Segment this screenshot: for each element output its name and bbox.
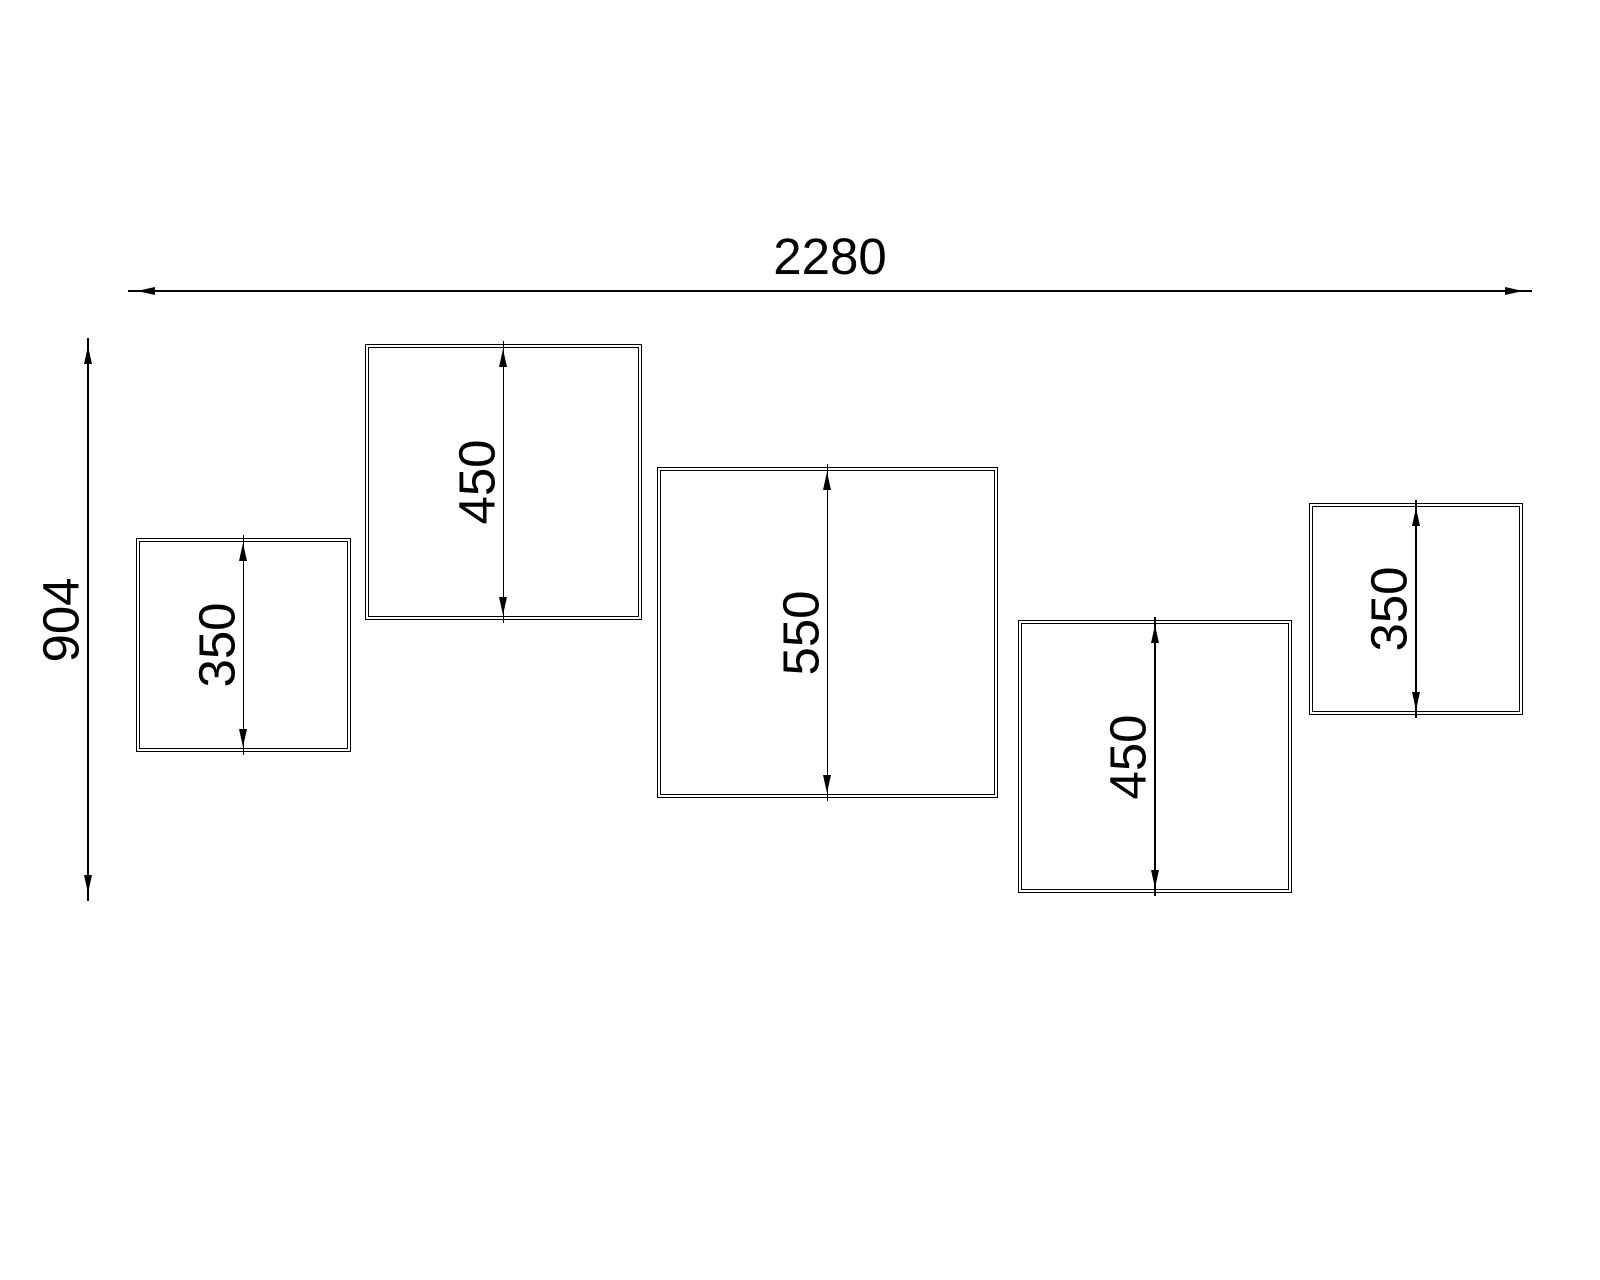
dim-stub	[128, 290, 138, 291]
box-1: 350	[136, 538, 351, 752]
box-4-height-label: 450	[1103, 714, 1154, 799]
dim-stub	[827, 464, 828, 474]
dim-stub	[1522, 290, 1532, 291]
dim-stub	[503, 613, 504, 623]
dim-stub	[243, 745, 244, 755]
dim-line	[137, 290, 1523, 291]
box-4: 450	[1018, 620, 1292, 893]
dim-stub	[1154, 617, 1155, 627]
arrow-up-icon	[1412, 508, 1420, 526]
dim-stub	[1415, 708, 1416, 718]
arrow-up-icon	[84, 346, 92, 364]
box-3-height-label: 550	[775, 590, 826, 675]
box-2-height-label: 450	[451, 439, 502, 524]
cad-drawing-canvas: 2280 904 350 450	[0, 0, 1600, 1280]
dim-stub	[827, 791, 828, 801]
arrow-left-icon	[137, 287, 155, 295]
dim-stub	[87, 338, 88, 348]
overall-width-label: 2280	[773, 231, 886, 282]
box-1-height-label: 350	[191, 602, 242, 687]
arrow-up-icon	[1151, 625, 1159, 643]
dim-stub	[243, 535, 244, 545]
arrow-right-icon	[1505, 287, 1523, 295]
dim-stub	[1154, 886, 1155, 896]
dim-stub	[1415, 500, 1416, 510]
box-2: 450	[365, 344, 642, 620]
arrow-up-icon	[823, 472, 831, 490]
dim-stub	[503, 341, 504, 351]
box-5: 350	[1309, 503, 1523, 715]
box-3: 550	[657, 467, 998, 798]
arrow-up-icon	[239, 543, 247, 561]
dim-stub	[87, 891, 88, 901]
overall-height-label: 904	[36, 577, 87, 662]
arrow-up-icon	[499, 349, 507, 367]
box-5-height-label: 350	[1364, 566, 1415, 651]
